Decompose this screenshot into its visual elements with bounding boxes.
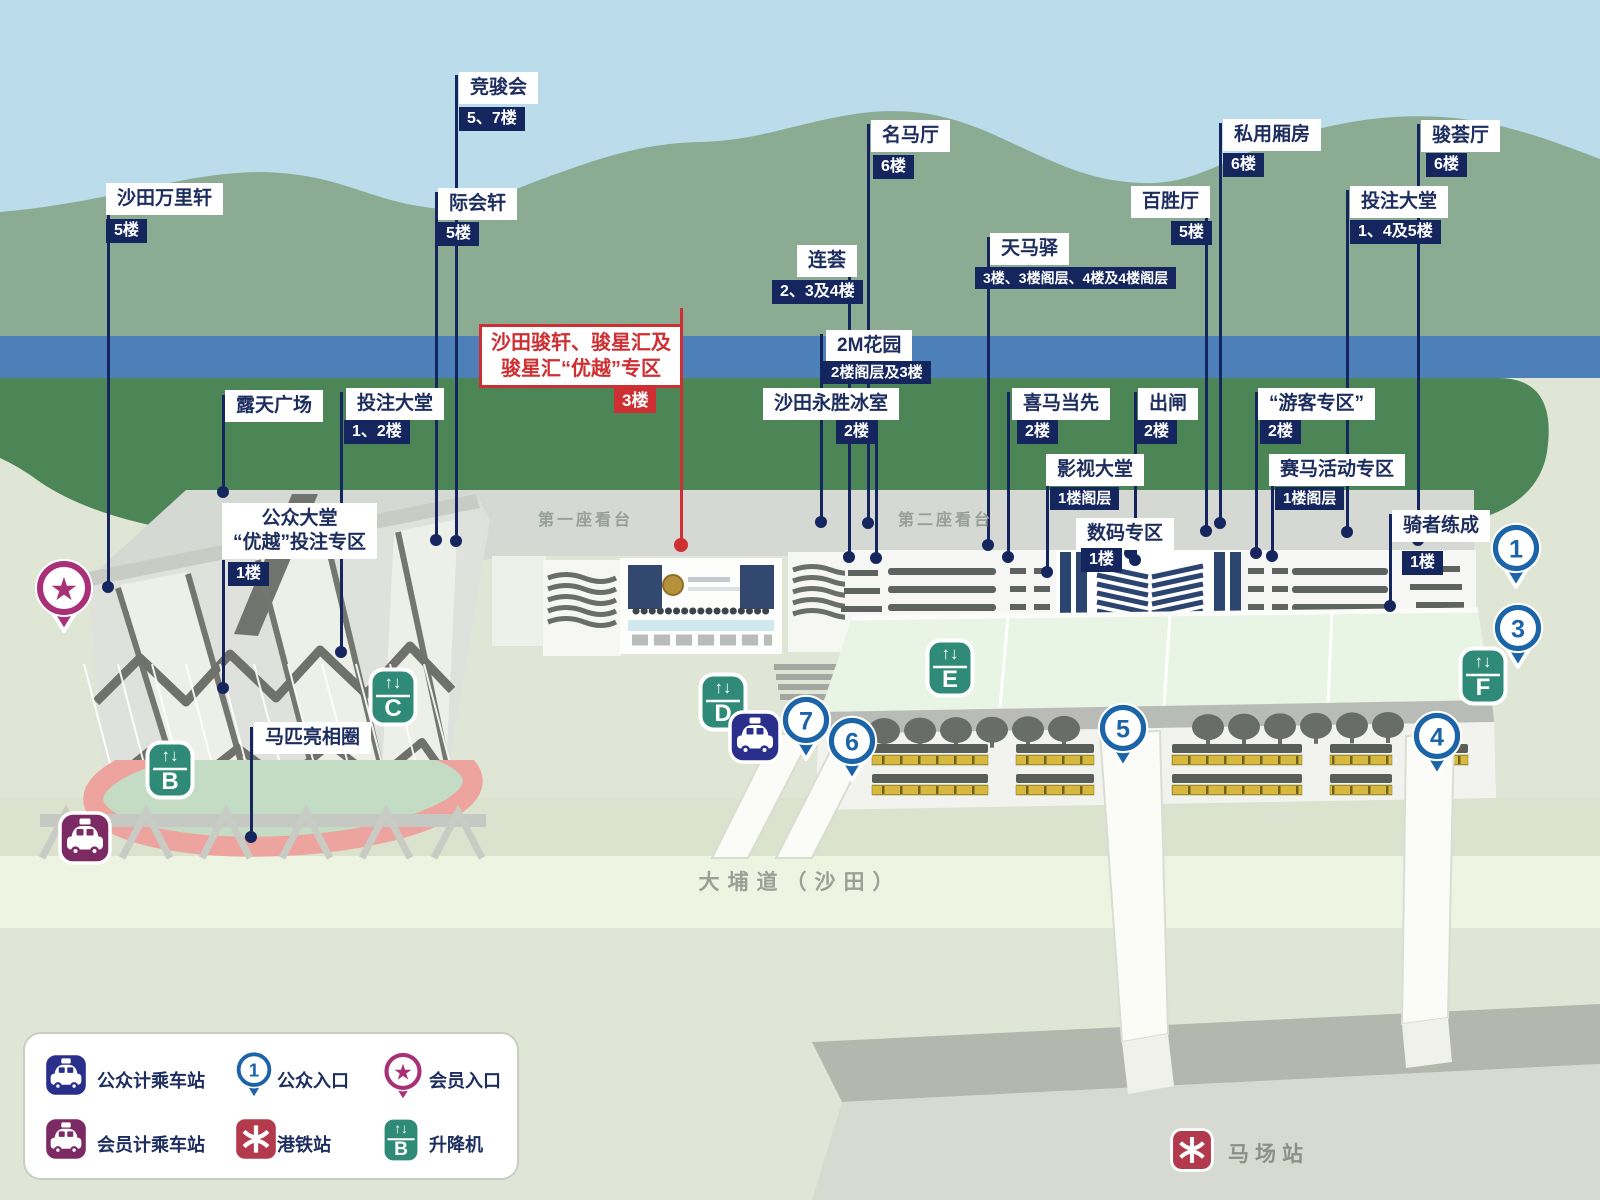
entrance-pin-4: 4 (1409, 707, 1465, 783)
legend-icon-member-entrance-pin: ★ (381, 1048, 425, 1108)
label-riders-up: 骑者练成 (1392, 510, 1490, 542)
floor-badge-movie-hall: 1楼阁层 (1050, 487, 1119, 510)
leader-dot-racing-club (450, 535, 462, 547)
label-public-hall-priority-zone: 公众大堂“优越”投注专区 (222, 503, 377, 559)
label-betting-hall-grandstand2: 投注大堂 (1350, 186, 1448, 218)
label-text: 沙田永胜冰室 (774, 392, 888, 416)
legend-icon-taxi-member (43, 1116, 89, 1167)
label-hi-ma-dong-sin: 喜马当先 (1012, 388, 1110, 420)
label-text: 马匹亮相圈 (265, 726, 360, 750)
svg-text:↑↓: ↑↓ (385, 673, 402, 692)
floor-badge-riders-up: 1楼 (1402, 551, 1443, 575)
label-text: 骑者练成 (1403, 514, 1479, 538)
leader-dot-chik-wui-hin (430, 534, 442, 546)
floor-badge-hi-ma-dong-sin: 2楼 (1017, 420, 1058, 444)
lift-E: ↑↓E (925, 638, 975, 703)
svg-text:6: 6 (845, 728, 859, 756)
label-open-piazza: 露天广场 (225, 390, 323, 422)
floor-badge-racing-club: 5、7楼 (459, 107, 525, 131)
svg-text:E: E (942, 666, 958, 693)
svg-text:↑↓: ↑↓ (1475, 652, 1492, 671)
svg-text:3: 3 (1511, 615, 1525, 643)
svg-text:↑↓: ↑↓ (942, 644, 959, 663)
label-chik-wui-hin: 际会轩 (438, 188, 517, 220)
label-private-boxes: 私用厢房 (1223, 119, 1321, 151)
svg-text:B: B (161, 768, 178, 795)
taxi-icon-public (728, 710, 782, 764)
taxi-stand-public (728, 710, 782, 769)
floor-badge-digital-zone: 1楼 (1081, 548, 1122, 572)
svg-text:1: 1 (249, 1060, 259, 1081)
leader-line-shatin-trackside (107, 186, 110, 587)
label-text: 骏星汇“优越”专区 (491, 356, 671, 382)
label-ming-ma-hall: 名马厅 (871, 120, 950, 152)
leader-line-racing-club (455, 75, 458, 541)
taxi-icon-public (43, 1052, 89, 1098)
label-shatin-lodge-star-hub-priority: 沙田骏轩、骏星汇及骏星汇“优越”专区 (479, 324, 683, 388)
svg-text:↑↓: ↑↓ (394, 1121, 408, 1136)
entrance-pin-icon: 4 (1409, 707, 1465, 778)
leader-dot-betting-hall-grandstand2 (1341, 526, 1353, 538)
svg-text:★: ★ (50, 571, 79, 607)
svg-text:★: ★ (393, 1060, 413, 1085)
leader-dot-shatin-trackside (102, 581, 114, 593)
label-digital-zone: 数码专区 (1076, 518, 1174, 550)
leader-dot-movie-hall (1041, 566, 1053, 578)
label-pak-sing-hall: 百胜厅 (1131, 186, 1210, 218)
label-racing-club: 竞骏会 (459, 72, 538, 104)
svg-text:↑↓: ↑↓ (162, 746, 179, 765)
label-text: 数码专区 (1087, 522, 1163, 546)
entrance-pin-1: 1 (1488, 519, 1544, 595)
entrance-pin-icon: 5 (1095, 699, 1151, 770)
floor-badge-shatin-trackside: 5楼 (106, 219, 147, 243)
leader-line-hi-ma-dong-sin (1007, 392, 1010, 557)
entrance-pin-icon: 7 (778, 691, 834, 762)
label-text: “游客专区” (1269, 392, 1364, 416)
leader-dot-riders-up (1384, 600, 1396, 612)
taxi-stand-member (58, 811, 112, 870)
label-2m-garden: 2M花园 (826, 330, 912, 362)
label-text: 沙田骏轩、骏星汇及 (491, 330, 671, 356)
mtr-station: 马场站 (1170, 1128, 1309, 1177)
member-entrance-pin: ★ (32, 554, 96, 639)
label-text: 连荟 (808, 249, 846, 273)
lift-icon: ↑↓E (925, 638, 975, 698)
legend-panel: 公众计乘车站1公众入口★会员入口会员计乘车站港铁站↑↓B升降机 (23, 1032, 519, 1180)
label-betting-hall-grandstand1: 投注大堂 (346, 388, 444, 420)
label-text: 露天广场 (236, 394, 312, 418)
label-text: 喜马当先 (1023, 392, 1099, 416)
legend-icon-taxi-public (43, 1052, 89, 1103)
floor-badge-racing-activity-zone: 1楼阁层 (1275, 487, 1344, 510)
entrance-pin-icon: 1 (1488, 519, 1544, 590)
stand2-roof (820, 610, 1492, 712)
mtr-icon (233, 1116, 279, 1162)
floor-badge-ming-ma-hall: 6楼 (873, 155, 914, 179)
label-shatin-trackside: 沙田万里轩 (106, 183, 223, 215)
leader-dot-racing-activity-zone (1266, 550, 1278, 562)
grandstand1-name: 第一座看台 (538, 506, 633, 530)
legend-icon-entrance-pin: 1 (233, 1048, 275, 1106)
star-pin-icon: ★ (381, 1048, 425, 1103)
leader-dot-shatin-lodge-star-hub-priority (674, 538, 688, 552)
label-text: 投注大堂 (1361, 190, 1437, 214)
svg-text:↑↓: ↑↓ (715, 678, 732, 697)
leader-dot-private-boxes (1214, 517, 1226, 529)
lift-icon: ↑↓F (1458, 646, 1508, 706)
racecourse-facilities-map: 第一座看台 第二座看台 大埔道（沙田） 马场站 沙田万里轩5楼竞骏会5、7楼际会… (0, 0, 1600, 1200)
label-text: 沙田万里轩 (117, 187, 212, 211)
label-text: 天马驿 (1001, 237, 1058, 261)
leader-dot-betting-hall-grandstand1 (335, 646, 347, 658)
lift-icon: ↑↓B (145, 740, 195, 800)
legend-label: 升降机 (429, 1131, 483, 1157)
floor-badge-chik-wui-hin: 5楼 (438, 222, 479, 246)
leader-dot-tourists-zone (1250, 547, 1262, 559)
station-name: 马场站 (1228, 1138, 1309, 1168)
legend-label: 港铁站 (277, 1131, 331, 1157)
label-text: 影视大堂 (1057, 458, 1133, 482)
river (0, 336, 1600, 378)
leader-dot-starting-gate (1129, 554, 1141, 566)
label-tin-ma-inn: 天马驿 (990, 233, 1069, 265)
label-text: 骏荟厅 (1432, 124, 1489, 148)
label-text: 2M花园 (837, 334, 901, 358)
label-tourists-zone: “游客专区” (1258, 388, 1375, 420)
label-text: 竞骏会 (470, 76, 527, 100)
svg-text:1: 1 (1509, 535, 1523, 563)
lift-B: ↑↓B (145, 740, 195, 805)
leader-dot-2m-garden (815, 516, 827, 528)
svg-text:4: 4 (1430, 723, 1444, 751)
floor-badge-tin-ma-inn: 3楼、3楼阁层、4楼及4楼阁层 (975, 267, 1176, 289)
label-movie-hall: 影视大堂 (1046, 454, 1144, 486)
label-lin-wui: 连荟 (797, 245, 857, 277)
lift-C: ↑↓C (368, 667, 418, 732)
legend-label: 会员计乘车站 (97, 1131, 205, 1157)
label-chun-wui-hall: 骏荟厅 (1421, 120, 1500, 152)
star-pin-icon: ★ (32, 554, 96, 634)
label-text: 公众大堂 (233, 507, 366, 531)
leader-line-parade-ring (250, 727, 253, 837)
label-parade-ring: 马匹亮相圈 (254, 722, 371, 754)
floor-badge-yung-sing-cafe: 2楼 (836, 420, 877, 444)
leader-dot-ming-ma-hall (862, 517, 874, 529)
leader-line-public-hall-priority-zone (222, 560, 225, 688)
legend-icon-lift: ↑↓B (381, 1116, 421, 1169)
leader-dot-yung-sing-cafe (870, 552, 882, 564)
floor-badge-pak-sing-hall: 5楼 (1171, 221, 1212, 245)
leader-dot-lin-wui (843, 551, 855, 563)
label-starting-gate: 出闸 (1138, 388, 1198, 420)
label-text: 百胜厅 (1142, 190, 1199, 214)
label-text: 投注大堂 (357, 392, 433, 416)
legend-label: 公众计乘车站 (97, 1067, 205, 1093)
entrance-pin-7: 7 (778, 691, 834, 767)
leader-dot-pak-sing-hall (1200, 525, 1212, 537)
legend-label: 会员入口 (429, 1067, 501, 1093)
legend-icon-mtr (233, 1116, 279, 1167)
grandstand2-name: 第二座看台 (898, 506, 993, 530)
label-yung-sing-cafe: 沙田永胜冰室 (763, 388, 899, 420)
floor-badge-betting-hall-grandstand1: 1、2楼 (344, 420, 410, 444)
map-illustration (0, 0, 1600, 1200)
taxi-icon-member (43, 1116, 89, 1162)
label-text: “优越”投注专区 (233, 531, 366, 555)
floor-badge-2m-garden: 2楼阁层及3楼 (823, 361, 931, 384)
entrance-pin-5: 5 (1095, 699, 1151, 775)
label-text: 际会轩 (449, 192, 506, 216)
svg-text:C: C (384, 695, 401, 722)
leader-line-ming-ma-hall (867, 124, 870, 523)
lift-icon: ↑↓B (381, 1116, 421, 1164)
floor-badge-chun-wui-hall: 6楼 (1426, 153, 1467, 177)
leader-line-pak-sing-hall (1205, 212, 1208, 531)
svg-text:F: F (1476, 674, 1491, 701)
club-logo (663, 575, 683, 595)
floor-badge-lin-wui: 2、3及4楼 (772, 280, 863, 304)
mtr-station-icon (1170, 1128, 1214, 1172)
floor-badge-tourists-zone: 2楼 (1260, 420, 1301, 444)
leader-dot-open-piazza (217, 486, 229, 498)
lift-F: ↑↓F (1458, 646, 1508, 711)
svg-text:7: 7 (799, 707, 813, 735)
svg-text:5: 5 (1116, 715, 1130, 743)
entrance-pin-icon: 1 (233, 1048, 275, 1101)
floor-badge-shatin-lodge-star-hub-priority: 3楼 (614, 388, 656, 413)
lift-icon: ↑↓C (368, 667, 418, 727)
mtr-icon (1170, 1128, 1214, 1177)
leader-dot-tin-ma-inn (982, 539, 994, 551)
taxi-icon-member (58, 811, 112, 865)
leader-dot-parade-ring (245, 831, 257, 843)
legend-label: 公众入口 (277, 1067, 349, 1093)
label-text: 赛马活动专区 (1280, 458, 1394, 482)
label-text: 名马厅 (882, 124, 939, 148)
leader-dot-public-hall-priority-zone (217, 682, 229, 694)
label-text: 私用厢房 (1234, 123, 1310, 147)
leader-line-private-boxes (1219, 123, 1222, 523)
floor-badge-private-boxes: 6楼 (1223, 153, 1264, 177)
floor-badge-betting-hall-grandstand2: 1、4及5楼 (1350, 220, 1441, 244)
road-name: 大埔道（沙田） (0, 866, 1600, 896)
label-text: 出闸 (1149, 392, 1187, 416)
label-racing-activity-zone: 赛马活动专区 (1269, 454, 1405, 486)
floor-badge-public-hall-priority-zone: 1楼 (228, 562, 269, 586)
leader-dot-hi-ma-dong-sin (1002, 551, 1014, 563)
svg-text:B: B (394, 1139, 408, 1160)
floor-badge-starting-gate: 2楼 (1136, 420, 1177, 444)
